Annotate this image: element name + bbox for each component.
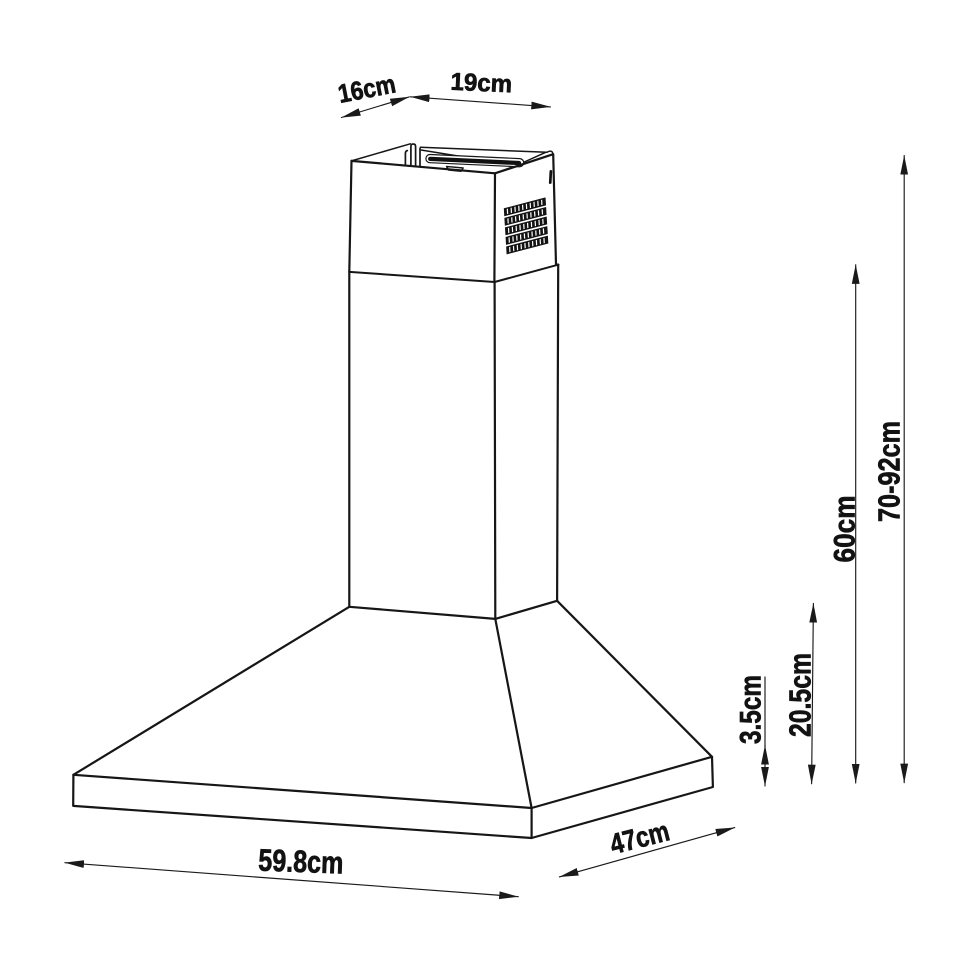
svg-text:70-92cm: 70-92cm [872, 421, 907, 522]
svg-text:20.5cm: 20.5cm [783, 653, 818, 737]
svg-text:19cm: 19cm [450, 69, 513, 99]
svg-text:60cm: 60cm [829, 496, 862, 563]
svg-text:59.8cm: 59.8cm [258, 842, 344, 880]
svg-text:3.5cm: 3.5cm [734, 675, 767, 744]
